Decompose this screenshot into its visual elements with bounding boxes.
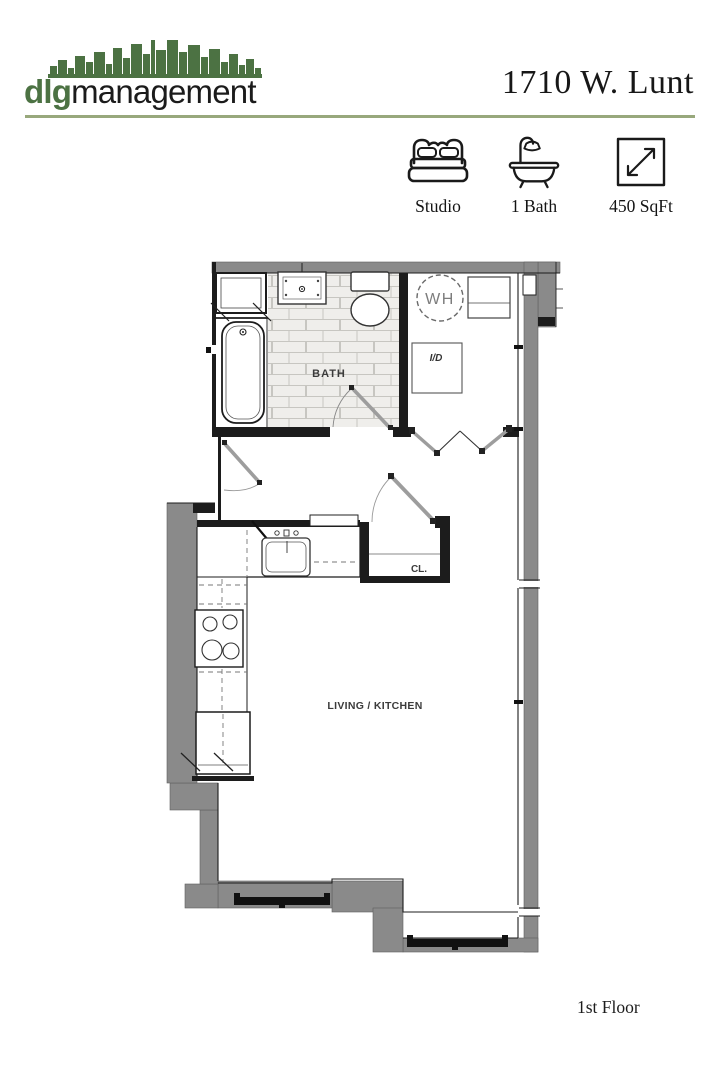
bathtub — [222, 322, 264, 423]
bed-icon — [406, 132, 470, 190]
logo-text-dlg: dlg — [24, 73, 71, 110]
utility-bifold-doors — [409, 425, 512, 456]
floor-plan: WH I/D — [150, 240, 590, 990]
utility-cabinet — [468, 277, 510, 318]
living-kitchen-label: LIVING / KITCHEN — [327, 700, 422, 712]
range-stove — [195, 610, 243, 667]
stat-area: 450 SqFt — [599, 132, 683, 217]
logo-wordmark: dlgmanagement — [24, 73, 256, 110]
linen-closet — [211, 273, 271, 321]
wall-shelf — [310, 515, 358, 526]
stat-studio-label: Studio — [415, 196, 461, 217]
dlg-management-logo: dlgmanagement — [24, 26, 264, 112]
kitchen-fixtures — [181, 515, 360, 774]
washer-dryer-label: I/D — [430, 353, 443, 364]
brand-logo: dlgmanagement — [24, 26, 264, 112]
logo-text-management: management — [71, 73, 256, 110]
closet-door — [372, 473, 436, 524]
area-arrows-icon — [613, 132, 669, 190]
stat-bath: 1 Bath — [495, 132, 573, 217]
bathtub-icon — [506, 132, 562, 190]
floor-number-label: 1st Floor — [577, 997, 640, 1018]
stat-area-label: 450 SqFt — [609, 196, 673, 217]
toilet — [351, 272, 389, 326]
water-heater-label: WH — [425, 291, 455, 308]
washer-dryer-box: I/D — [412, 343, 462, 393]
closet-label: CL. — [411, 564, 427, 575]
kitchen-sink — [262, 530, 310, 576]
utility-fixtures: WH I/D — [412, 275, 510, 393]
doors — [222, 385, 512, 524]
bath-room-label: BATH — [312, 368, 346, 380]
page-title: 1710 W. Lunt — [502, 66, 694, 100]
stat-bath-label: 1 Bath — [511, 196, 557, 217]
header-divider — [25, 115, 695, 118]
hall-door — [222, 440, 262, 491]
stat-studio: Studio — [396, 132, 480, 217]
